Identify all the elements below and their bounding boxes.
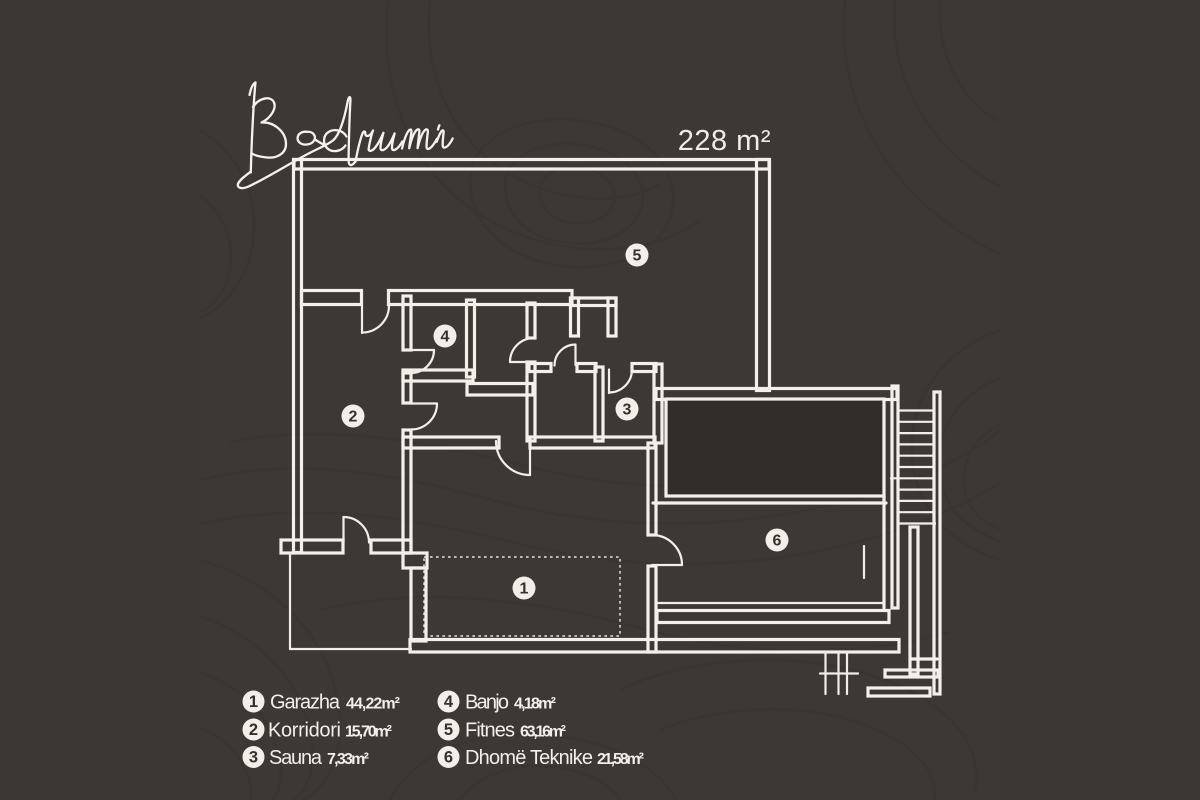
svg-text:63,16m²: 63,16m² bbox=[520, 724, 566, 741]
svg-text:4: 4 bbox=[444, 693, 454, 711]
svg-text:228 m²: 228 m² bbox=[678, 125, 771, 157]
svg-text:3: 3 bbox=[249, 749, 258, 767]
svg-text:1: 1 bbox=[249, 693, 258, 711]
svg-text:4: 4 bbox=[441, 329, 450, 346]
svg-text:5: 5 bbox=[633, 248, 642, 265]
svg-text:6: 6 bbox=[444, 749, 453, 767]
svg-text:5: 5 bbox=[444, 721, 453, 739]
svg-text:Garazha: Garazha bbox=[270, 692, 341, 714]
svg-text:Fitnes: Fitnes bbox=[465, 720, 515, 742]
svg-text:21,58m²: 21,58m² bbox=[597, 751, 644, 768]
svg-text:Sauna: Sauna bbox=[269, 747, 323, 769]
svg-text:7,33m²: 7,33m² bbox=[327, 751, 369, 768]
svg-text:Dhomë Teknike: Dhomë Teknike bbox=[465, 747, 593, 769]
svg-text:15,70m²: 15,70m² bbox=[345, 724, 392, 741]
svg-text:1: 1 bbox=[520, 581, 529, 598]
svg-text:6: 6 bbox=[773, 533, 782, 550]
svg-text:Banjo: Banjo bbox=[465, 692, 509, 714]
svg-text:Korridori: Korridori bbox=[268, 720, 341, 742]
svg-text:4,18m²: 4,18m² bbox=[514, 696, 556, 713]
svg-text:2: 2 bbox=[249, 721, 258, 739]
svg-text:44,22m²: 44,22m² bbox=[346, 696, 400, 713]
svg-text:3: 3 bbox=[623, 402, 632, 419]
svg-text:2: 2 bbox=[349, 409, 358, 426]
